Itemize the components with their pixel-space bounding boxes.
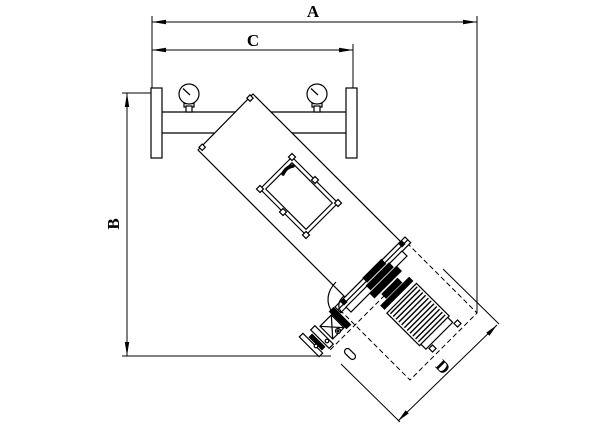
flange-left (151, 88, 162, 158)
flange-right (346, 88, 357, 158)
dim-c: C (152, 31, 353, 88)
dim-b-arrow-top (125, 93, 129, 107)
valve-lever (343, 347, 356, 360)
dim-c-arrow-right (339, 48, 353, 52)
dim-a-arrow-right (463, 20, 477, 24)
dim-d-arrow-lower (398, 410, 409, 421)
motor-foot (429, 345, 436, 352)
motor-foot (454, 320, 461, 327)
drain-valve (299, 307, 356, 360)
dim-d-arrow-upper (486, 325, 497, 336)
dim-c-arrow-left (152, 48, 166, 52)
pressure-gauge-left (179, 84, 199, 112)
dim-a-label: A (307, 2, 320, 21)
dim-b-arrow-bottom (125, 342, 129, 356)
dim-c-label: C (247, 31, 259, 50)
pressure-gauge-right (307, 84, 327, 112)
ystrainer-technical-drawing: A C B D (0, 0, 605, 428)
drawing-canvas: A C B D (0, 0, 605, 428)
valve-bolt (314, 344, 318, 348)
valve-bolt (325, 339, 329, 343)
dim-a-arrow-left (152, 20, 166, 24)
dim-d-label: D (432, 356, 454, 378)
dim-b-label: B (104, 218, 123, 229)
